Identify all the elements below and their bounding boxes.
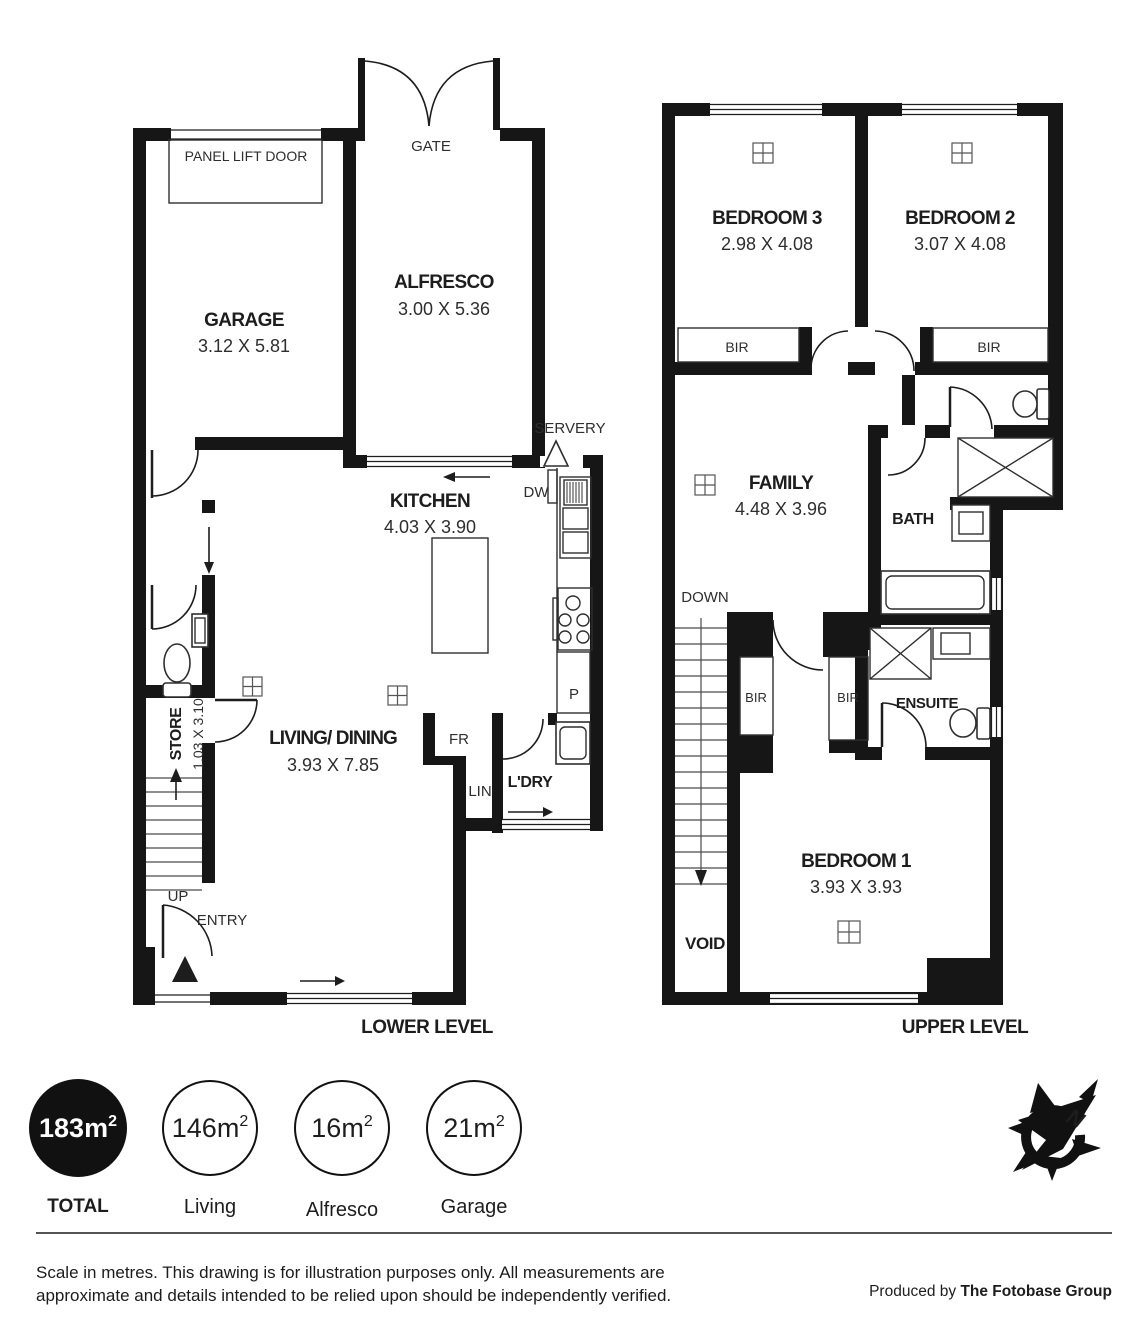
bedroom2-label: BEDROOM 2 xyxy=(905,208,1015,229)
living-area-label: Living xyxy=(184,1196,236,1218)
svg-text:146m2: 146m2 xyxy=(172,1113,249,1143)
cooktop-icon xyxy=(553,588,592,650)
living-area-sup: 2 xyxy=(239,1113,248,1130)
area-badge-alfresco: 16m2 Alfresco xyxy=(295,1081,389,1221)
light-symbol-icon xyxy=(838,921,860,943)
garage-area-label: Garage xyxy=(441,1196,508,1218)
bedroom3-label: BEDROOM 3 xyxy=(712,208,822,229)
gate-icon xyxy=(365,61,493,126)
credit-brand: The Fotobase Group xyxy=(960,1283,1112,1300)
fridge-label: FR xyxy=(449,731,469,748)
svg-text:21m2: 21m2 xyxy=(443,1113,505,1143)
svg-text:16m2: 16m2 xyxy=(311,1113,373,1143)
floorplan-page: PANEL LIFT DOOR GATE GARAGE 3.12 X 5.81 … xyxy=(0,0,1148,1333)
bedroom1-label: BEDROOM 1 xyxy=(801,851,912,872)
svg-text:183m2: 183m2 xyxy=(39,1113,117,1143)
kitchen-label: KITCHEN xyxy=(390,491,470,512)
laundry-trough-icon xyxy=(556,722,590,764)
producer-credit: Produced by The Fotobase Group xyxy=(869,1283,1112,1300)
light-symbol-icon xyxy=(695,475,715,495)
upper-level-title: UPPER LEVEL xyxy=(902,1017,1029,1038)
area-badge-garage: 21m2 Garage xyxy=(427,1081,521,1218)
upper-stairs xyxy=(675,618,727,886)
shower-icon xyxy=(958,438,1053,497)
panel-lift-door-label: PANEL LIFT DOOR xyxy=(185,148,308,164)
living-dining-label: LIVING/ DINING xyxy=(269,728,397,749)
entry-arrow-icon xyxy=(172,956,198,982)
family-dims: 4.48 X 3.96 xyxy=(735,499,827,519)
servery-label: SERVERY xyxy=(534,420,605,437)
family-label: FAMILY xyxy=(749,473,814,494)
total-area-label: TOTAL xyxy=(47,1196,109,1217)
down-label: DOWN xyxy=(681,589,729,606)
light-symbol-icon xyxy=(243,677,262,696)
alfresco-dims: 3.00 X 5.36 xyxy=(398,299,490,319)
bathtub-icon xyxy=(881,571,990,614)
garage-label: GARAGE xyxy=(204,310,284,331)
upper-level-plan: BEDROOM 3 2.98 X 4.08 BEDROOM 2 3.07 X 4… xyxy=(662,103,1063,1038)
ensuite-shower-icon xyxy=(870,628,931,679)
store-dims: 1.03 X 3.10 xyxy=(190,698,206,770)
kitchen-dims: 4.03 X 3.90 xyxy=(384,517,476,537)
alfresco-area-value: 16m xyxy=(311,1113,364,1143)
bir-label: BIR xyxy=(725,339,748,355)
garage-dims: 3.12 X 5.81 xyxy=(198,336,290,356)
entry-label: ENTRY xyxy=(197,912,248,929)
laundry-label: L'DRY xyxy=(508,774,553,791)
bedroom1-dims: 3.93 X 3.93 xyxy=(810,877,902,897)
upper-toilet-icon xyxy=(1013,389,1049,419)
disclaimer-line-2: approximate and details intended to be r… xyxy=(36,1286,671,1305)
wc-toilet-icon xyxy=(163,644,191,697)
bedroom3-dims: 2.98 X 4.08 xyxy=(721,234,813,254)
area-badge-total: 183m2 TOTAL xyxy=(29,1079,127,1217)
alfresco-label: ALFRESCO xyxy=(394,272,494,293)
wc-basin-icon xyxy=(192,614,208,647)
servery-hatch-icon xyxy=(544,441,568,466)
linen-label: LIN xyxy=(468,783,491,800)
footer: Scale in metres. This drawing is for ill… xyxy=(36,1233,1112,1305)
floorplan-drawing: PANEL LIFT DOOR GATE GARAGE 3.12 X 5.81 … xyxy=(0,0,1148,1333)
bir-label: BIR xyxy=(977,339,1000,355)
lower-level-walls xyxy=(133,58,603,1005)
garage-area-sup: 2 xyxy=(496,1113,505,1130)
light-symbol-icon xyxy=(388,686,407,705)
bath-label: BATH xyxy=(892,511,934,528)
lower-level-plan: PANEL LIFT DOOR GATE GARAGE 3.12 X 5.81 … xyxy=(133,58,606,1038)
light-symbol-icon xyxy=(952,143,972,163)
bath-vanity-icon xyxy=(952,505,990,541)
ensuite-vanity-icon xyxy=(933,628,990,659)
oven-tower-icon xyxy=(560,477,591,558)
ensuite-label: ENSUITE xyxy=(896,695,959,712)
pantry-label: P xyxy=(569,686,579,703)
gate-label: GATE xyxy=(411,138,451,155)
credit-prefix: Produced by xyxy=(869,1283,960,1300)
alfresco-area-sup: 2 xyxy=(364,1113,373,1130)
area-badge-living: 146m2 Living xyxy=(163,1081,257,1218)
garage-area-value: 21m xyxy=(443,1113,496,1143)
lower-level-windows xyxy=(155,130,590,1004)
kitchen-island xyxy=(432,538,488,653)
living-dining-dims: 3.93 X 7.85 xyxy=(287,755,379,775)
total-area-value: 183m xyxy=(39,1113,108,1143)
lower-stairs xyxy=(146,778,202,890)
alfresco-area-label: Alfresco xyxy=(306,1199,378,1221)
bir-label: BIR xyxy=(745,690,767,705)
light-symbol-icon xyxy=(753,143,773,163)
bedroom2-dims: 3.07 X 4.08 xyxy=(914,234,1006,254)
store-label: STORE xyxy=(168,707,185,761)
ensuite-toilet-icon xyxy=(950,708,990,739)
bir-label: BIR xyxy=(837,690,859,705)
dishwasher-label: DW xyxy=(524,484,550,501)
disclaimer-line-1: Scale in metres. This drawing is for ill… xyxy=(36,1263,665,1282)
total-area-sup: 2 xyxy=(108,1113,117,1130)
lower-level-title: LOWER LEVEL xyxy=(361,1017,494,1038)
void-label: VOID xyxy=(685,934,725,953)
up-label: UP xyxy=(168,888,189,905)
living-area-value: 146m xyxy=(172,1113,240,1143)
area-badges: 183m2 TOTAL 146m2 Living 16m2 Alfresco 2… xyxy=(29,1079,521,1221)
compass-icon: N xyxy=(1008,1079,1101,1181)
